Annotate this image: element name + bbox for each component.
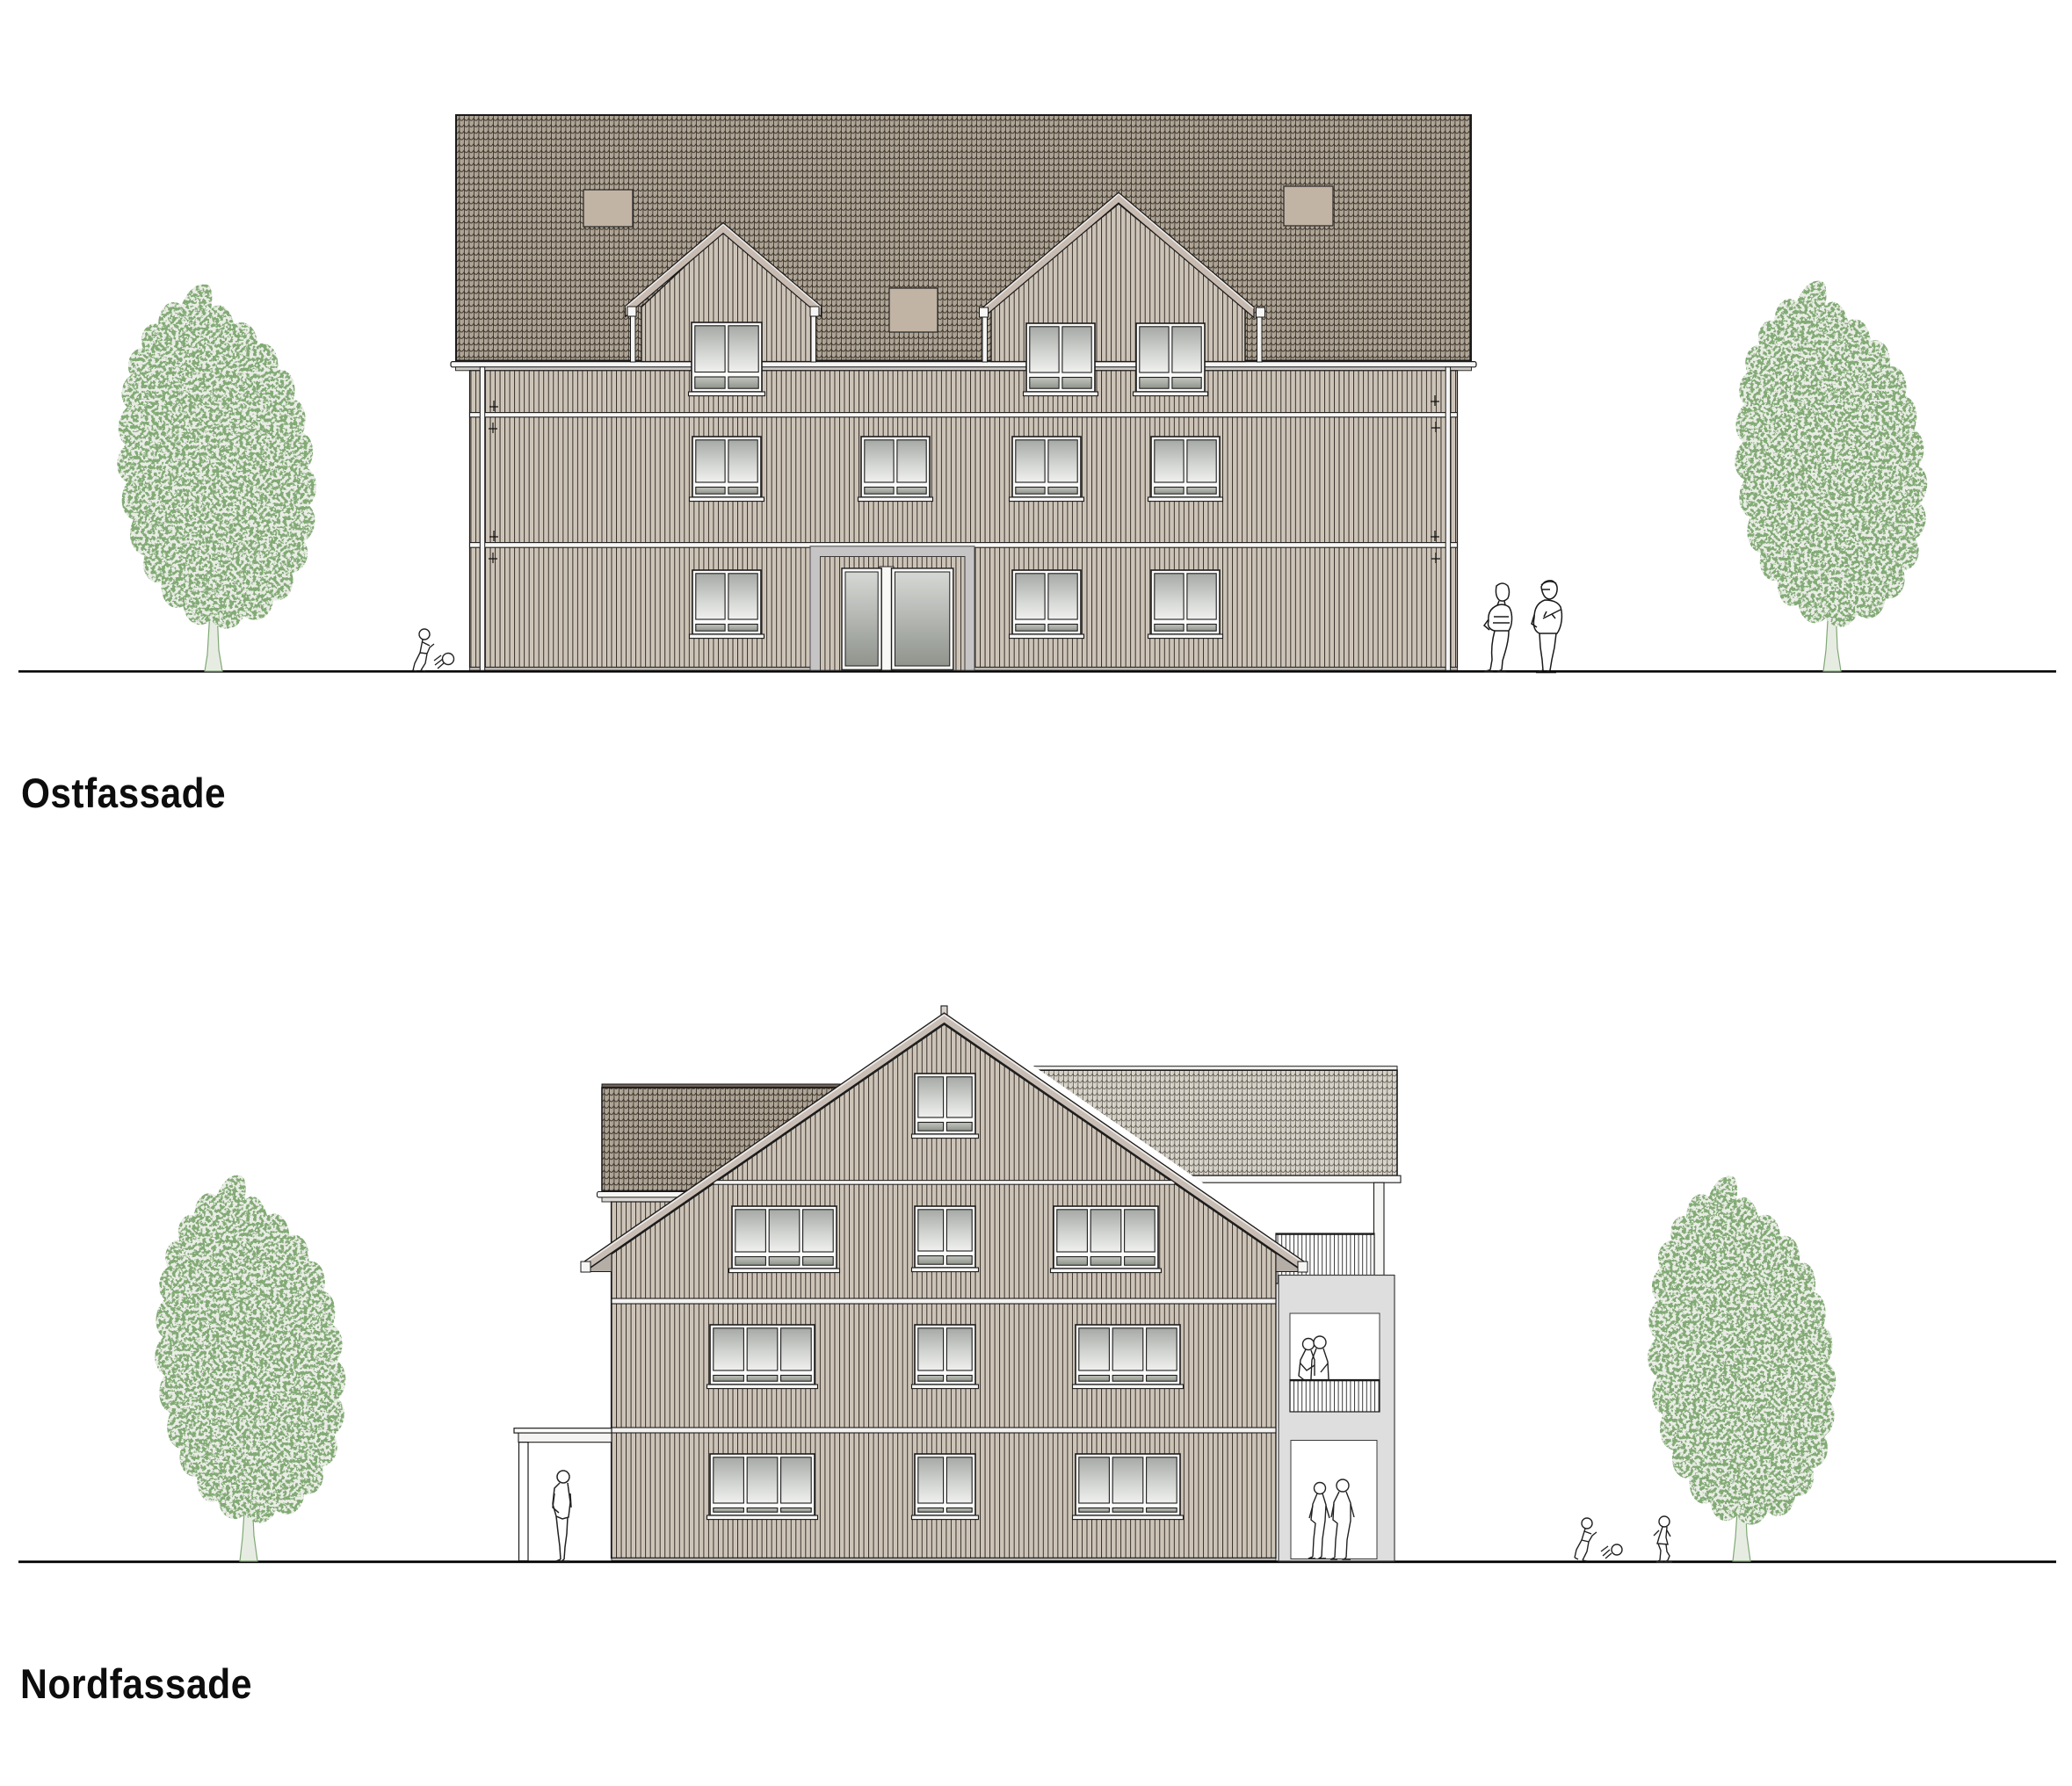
- svg-text:Ostfassade: Ostfassade: [21, 770, 226, 816]
- svg-text:Nordfassade: Nordfassade: [20, 1660, 252, 1707]
